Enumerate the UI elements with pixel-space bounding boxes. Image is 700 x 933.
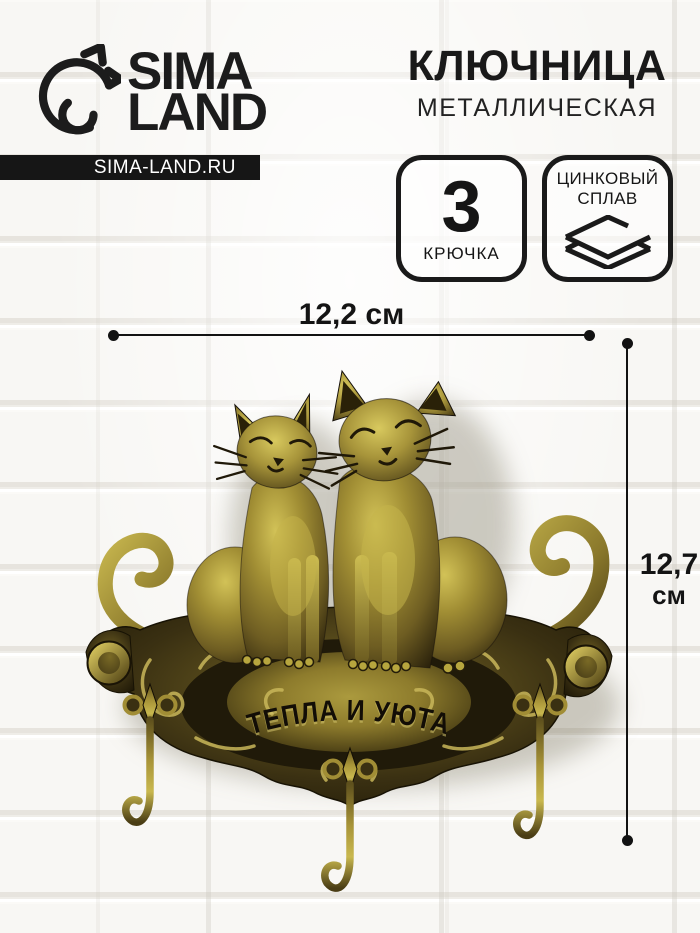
hook-left bbox=[125, 684, 176, 822]
product-card: SIMA LAND SIMA-LAND.RU КЛЮЧНИЦА МЕТАЛЛИЧ… bbox=[0, 0, 700, 933]
hook-center bbox=[325, 748, 376, 888]
cat-right-chest-highlight bbox=[361, 505, 415, 615]
key-holder-product-photo: ТЕПЛА И УЮТА ТЕПЛА И УЮТА bbox=[0, 0, 700, 933]
cat-left-chest-highlight bbox=[270, 516, 316, 616]
